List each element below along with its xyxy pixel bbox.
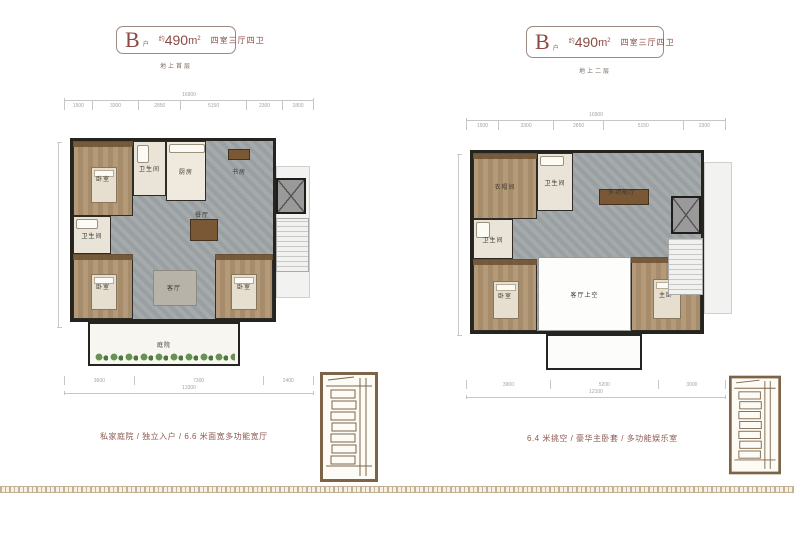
bed-furniture xyxy=(91,274,117,310)
unit-letter-sub: 户 xyxy=(553,43,559,52)
dimension-value: 3600 xyxy=(64,376,135,385)
toilet-fixture xyxy=(137,145,149,163)
room-study: 书房 xyxy=(206,141,272,201)
room-label: 客厅上空 xyxy=(570,290,598,299)
unit-letter: B xyxy=(125,29,140,51)
dimension-total: 13300 xyxy=(64,385,314,394)
dimension-value: 3000 xyxy=(659,380,726,389)
dimension-total: 16900 xyxy=(466,112,726,121)
unit-layout-label: 四室三厅四卫 xyxy=(621,37,675,48)
dimension-value: 5150 xyxy=(181,101,247,110)
ornamental-border xyxy=(0,486,794,493)
garden-plants xyxy=(93,352,235,362)
room-bathroom: 卫生间 xyxy=(133,141,166,196)
room-label: 书房 xyxy=(232,167,246,176)
room-label: 卧室 xyxy=(96,282,110,291)
room-label: 多功能厅 xyxy=(608,187,636,196)
room-bedroom: 卧室 xyxy=(73,141,133,216)
bathtub-fixture xyxy=(76,219,98,229)
room-label: 卧室 xyxy=(96,174,110,183)
room-label: 厨房 xyxy=(179,167,193,176)
dimension-line-left xyxy=(58,142,59,328)
room-bathroom: 卫生间 xyxy=(537,153,573,211)
room-bedroom: 卧室 xyxy=(473,259,537,331)
site-keyplan-icon xyxy=(320,372,378,482)
unit-badge-second-floor: B户 约490m2 四室三厅四卫 xyxy=(526,26,664,58)
void-over-living: 客厅上空 xyxy=(538,257,631,331)
dimension-value: 1800 xyxy=(283,101,314,110)
stairs xyxy=(276,218,309,272)
dimension-line-left xyxy=(458,154,459,336)
bathtub-fixture xyxy=(540,156,564,166)
room-label: 衣帽间 xyxy=(494,182,515,191)
elevator-shaft xyxy=(671,196,701,234)
area-sup: 2 xyxy=(197,36,200,42)
dimension-value: 2850 xyxy=(554,121,604,130)
unit-letter-sub: 户 xyxy=(143,39,149,48)
room-bathroom: 卫生间 xyxy=(73,216,111,254)
dimension-value: 5150 xyxy=(604,121,684,130)
selling-points-caption: 6.4 米挑空 / 豪华主卧套 / 多功能娱乐室 xyxy=(527,433,678,444)
dimension-value: 3300 xyxy=(499,121,554,130)
room-label: 卫生间 xyxy=(482,235,503,244)
dimension-value: 3300 xyxy=(93,101,140,110)
area-unit: m xyxy=(598,37,607,49)
dimension-value: 2300 xyxy=(247,101,283,110)
room-label: 客厅 xyxy=(167,283,181,292)
kitchen-counter xyxy=(169,144,205,153)
dimension-value: 2400 xyxy=(264,376,315,385)
unit-letter: B xyxy=(535,31,550,53)
dimension-value: 1500 xyxy=(64,101,93,110)
floor-level-label: 地上首层 xyxy=(116,61,236,70)
room-label: 卫生间 xyxy=(139,164,160,173)
floorplan-brochure-page: B户 约490m2 四室三厅四卫 地上首层 16900 1500 3300 28… xyxy=(0,0,794,536)
dimension-value: 2850 xyxy=(139,101,181,110)
room-family: 多功能厅 xyxy=(573,153,671,257)
bed-furniture xyxy=(493,281,519,319)
dimension-value: 5200 xyxy=(551,380,659,389)
stairs xyxy=(668,238,703,295)
room-bedroom: 卧室 xyxy=(215,254,273,319)
room-cloakroom: 衣帽间 xyxy=(473,153,537,219)
room-label: 卫生间 xyxy=(81,231,102,240)
common-core-ghost xyxy=(704,162,732,314)
terrace-outline xyxy=(546,334,642,370)
site-keyplan-icon xyxy=(729,372,781,478)
floor-level-label: 地上二层 xyxy=(526,66,664,75)
dimension-line-top: 16900 1500 3300 2850 5150 2300 1800 xyxy=(64,92,314,110)
room-label: 卫生间 xyxy=(544,178,565,187)
dimension-line-top: 16900 1500 3300 2850 5150 2300 xyxy=(466,112,726,130)
room-label: 卧室 xyxy=(498,291,512,300)
room-kitchen: 厨房 xyxy=(166,141,206,201)
dining-table xyxy=(190,219,218,241)
dimension-value: 1500 xyxy=(466,121,499,130)
selling-points-caption: 私家庭院 / 独立入户 / 6.6 米面宽多功能宽厅 xyxy=(100,431,268,442)
dimension-segments: 3900 5200 3000 xyxy=(466,380,726,389)
room-dining: 餐厅 xyxy=(166,201,238,251)
dimension-value: 2300 xyxy=(684,121,726,130)
dimension-line-bottom: 3900 5200 3000 12100 xyxy=(466,380,726,398)
dimension-total: 12100 xyxy=(466,389,726,398)
area-sup: 2 xyxy=(607,38,610,44)
room-label: 餐厅 xyxy=(195,210,209,219)
unit-badge-first-floor: B户 约490m2 四室三厅四卫 xyxy=(116,26,236,54)
room-label: 庭院 xyxy=(157,340,171,349)
desk-furniture xyxy=(228,149,250,160)
floorplan-second-floor: 衣帽间 卫生间 多功能厅 卫生间 卧室 客厅上空 主卧 xyxy=(470,150,732,374)
room-living: 客厅 xyxy=(133,256,215,319)
room-label: 卧室 xyxy=(237,282,251,291)
bed-furniture xyxy=(231,274,257,310)
dimension-segments: 1500 3300 2850 5150 2300 xyxy=(466,121,726,130)
room-bedroom: 卧室 xyxy=(73,254,133,319)
area-value: 490 xyxy=(575,35,598,49)
dimension-value: 3900 xyxy=(466,380,551,389)
unit-area: 约490m2 xyxy=(569,35,611,49)
dimension-total: 16900 xyxy=(64,92,314,101)
courtyard-garden: 庭院 xyxy=(88,322,240,366)
area-unit: m xyxy=(188,35,197,47)
elevator-shaft xyxy=(276,178,306,214)
area-value: 490 xyxy=(165,33,188,47)
floorplan-first-floor: 卧室 卫生间 厨房 书房 餐厅 卫生间 卧室 客厅 xyxy=(70,138,310,370)
room-bathroom: 卫生间 xyxy=(473,219,513,259)
bed-furniture xyxy=(91,167,117,203)
dimension-segments: 3600 7300 2400 xyxy=(64,376,314,385)
dimension-value: 7300 xyxy=(135,376,264,385)
dimension-segments: 1500 3300 2850 5150 2300 1800 xyxy=(64,101,314,110)
dimension-line-bottom: 3600 7300 2400 13300 xyxy=(64,376,314,394)
unit-area: 约490m2 xyxy=(159,33,201,47)
unit-layout-label: 四室三厅四卫 xyxy=(211,35,265,46)
